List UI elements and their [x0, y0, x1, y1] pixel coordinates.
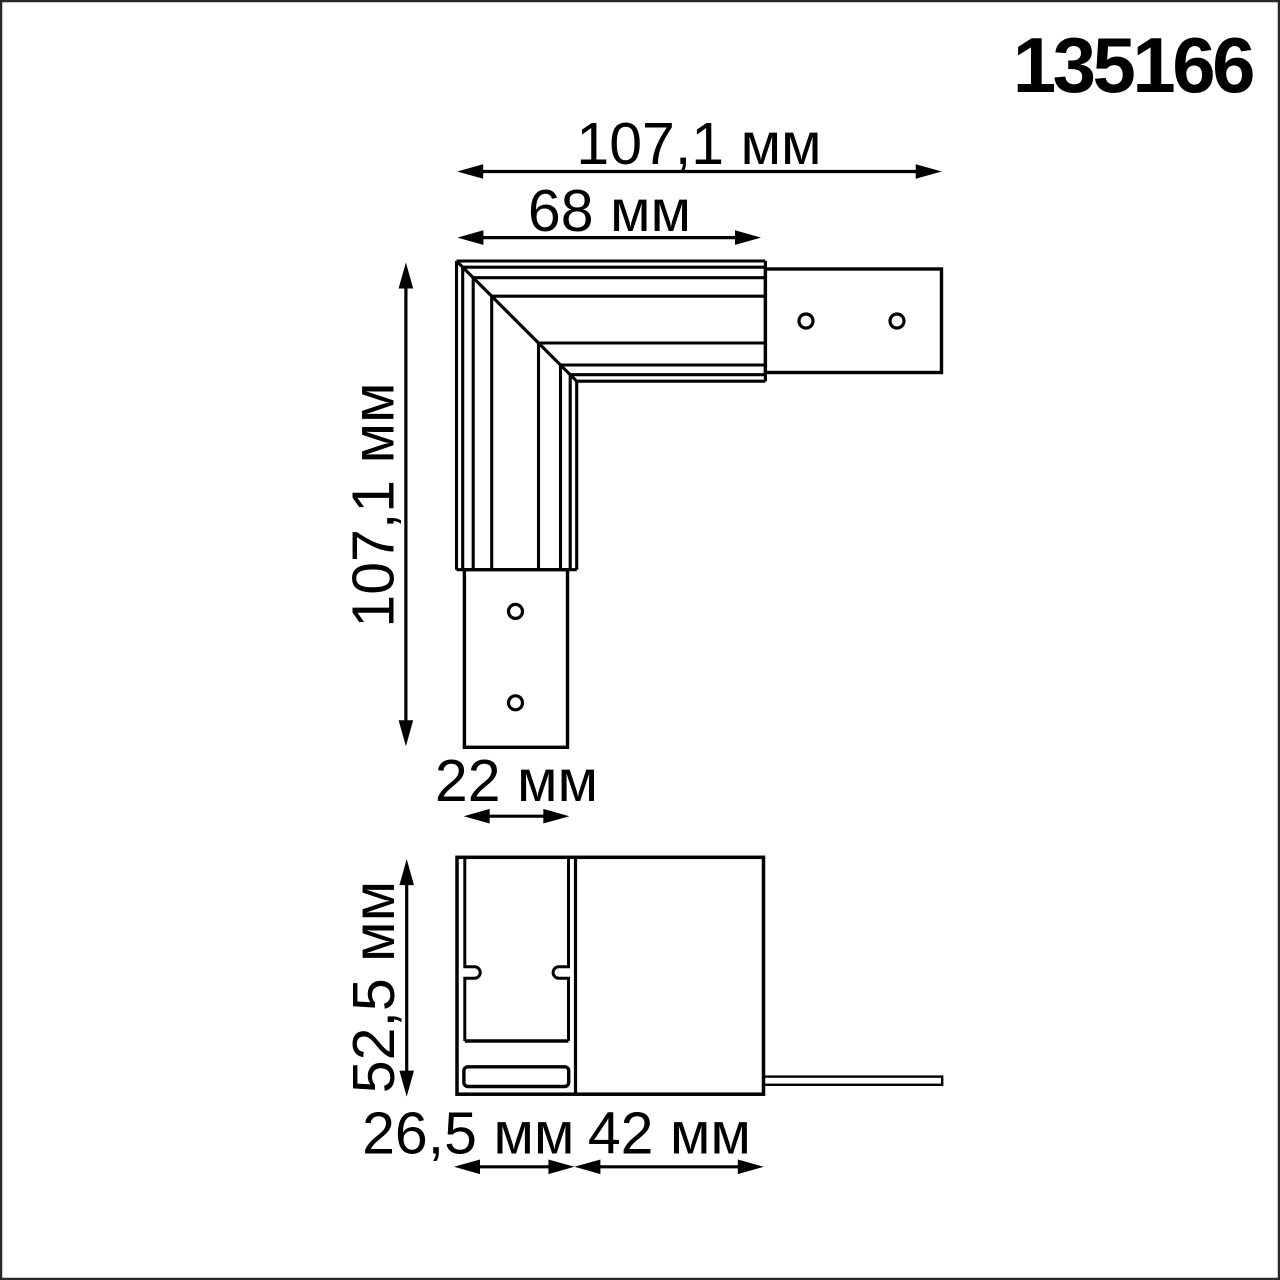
svg-text:52,5 мм: 52,5 мм: [341, 881, 407, 1093]
svg-text:107,1 мм: 107,1 мм: [341, 382, 407, 627]
svg-text:22 мм: 22 мм: [435, 748, 598, 814]
svg-text:107,1 мм: 107,1 мм: [576, 111, 821, 177]
svg-text:135166: 135166: [1013, 21, 1253, 109]
svg-text:42 мм: 42 мм: [588, 1100, 751, 1166]
svg-text:26,5 мм: 26,5 мм: [362, 1100, 574, 1166]
svg-text:68 мм: 68 мм: [528, 178, 691, 244]
